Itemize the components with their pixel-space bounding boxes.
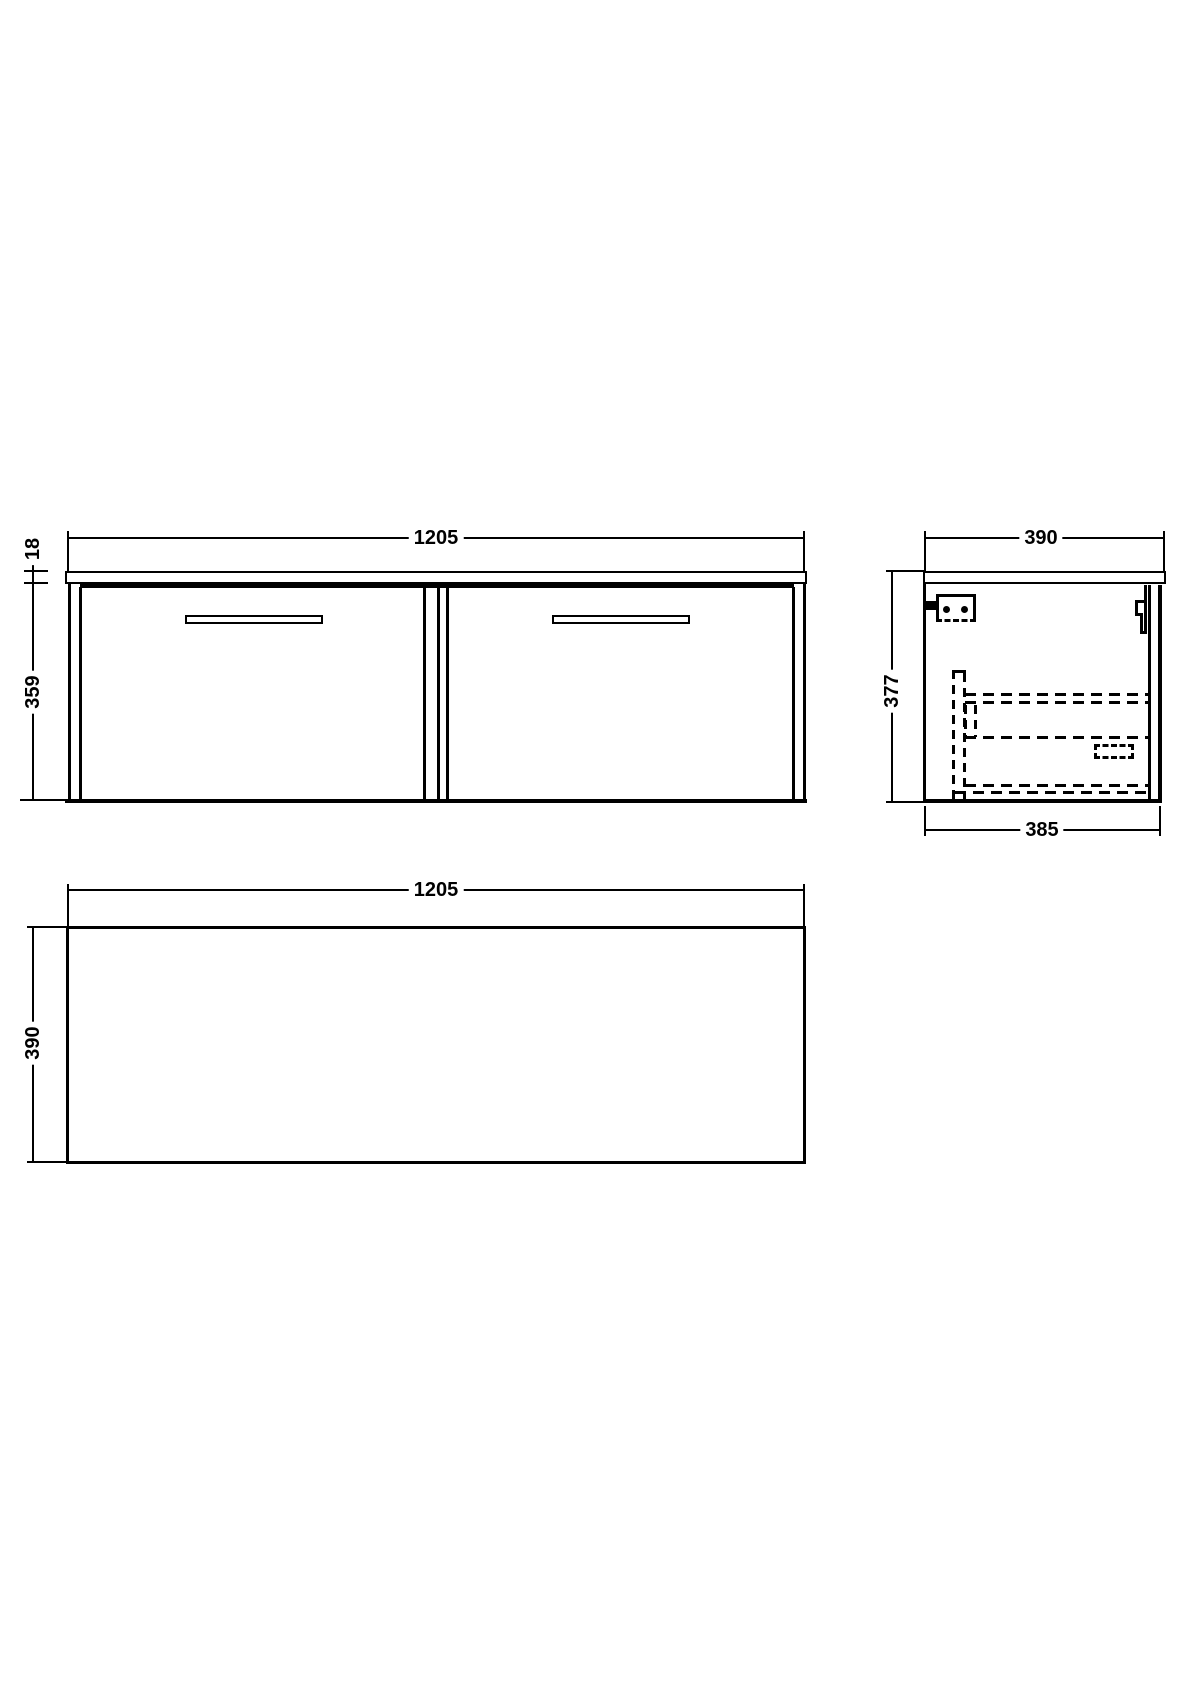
plan-worktop-outline (66, 926, 806, 1164)
plan-view: 1205 390 (0, 0, 1200, 1698)
plan-width-dimension-label: 1205 (409, 879, 464, 901)
technical-drawing-sheet: 1205 18 359 390 (0, 0, 1200, 1698)
plan-depth-dimension-label: 390 (22, 1021, 44, 1064)
